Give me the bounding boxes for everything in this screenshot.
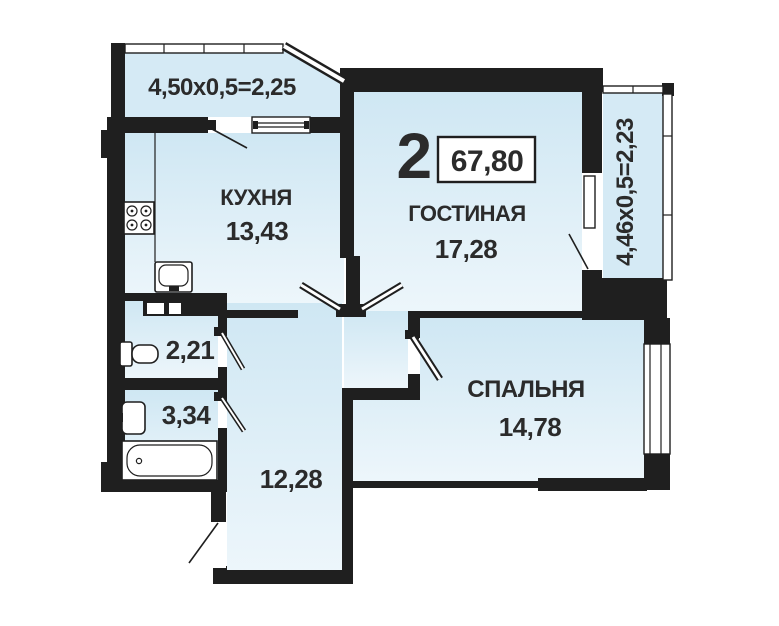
entrance-door	[189, 522, 226, 568]
kitchen-window	[252, 117, 310, 133]
kitchen-name-label: КУХНЯ	[220, 185, 292, 210]
living-name-label: ГОСТИНАЯ	[408, 201, 525, 226]
bedroom-window	[644, 344, 670, 454]
toilet-icon	[120, 342, 158, 366]
hallway-area-label: 12,28	[260, 464, 323, 494]
stove-icon	[124, 202, 154, 234]
bathtub-icon	[122, 441, 217, 480]
bathroom-area-label: 3,34	[162, 400, 212, 430]
hallway-floor	[227, 303, 342, 573]
balcony-right-dim-label: 4,46x0,5=2,23	[612, 118, 639, 266]
total-area-label: 67,80	[451, 145, 524, 178]
kitchen-sink-icon	[155, 262, 192, 292]
balcony-top-dim-label: 4,50x0,5=2,25	[148, 74, 296, 101]
wc-area-label: 2,21	[166, 335, 215, 365]
hallway-passage-floor	[344, 311, 408, 388]
living-area-label: 17,28	[435, 234, 498, 264]
apartment-floor-plan-page: 4,50x0,5=2,25 2 67,80 КУХНЯ 13,43 ГОСТИН…	[0, 0, 779, 626]
kitchen-area-label: 13,43	[226, 216, 289, 246]
rooms-count-label: 2	[396, 120, 431, 192]
floor-plan-svg: 4,50x0,5=2,25 2 67,80 КУХНЯ 13,43 ГОСТИН…	[0, 0, 779, 626]
bedroom-area-label: 14,78	[499, 412, 562, 442]
bedroom-name-label: СПАЛЬНЯ	[467, 376, 584, 403]
